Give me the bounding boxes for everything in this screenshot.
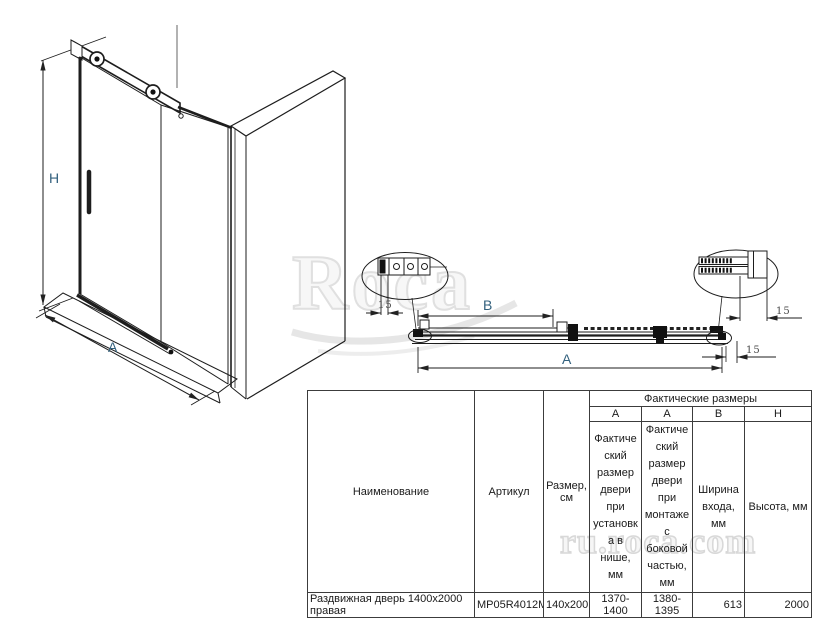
desc-h: Высота, мм [745,422,812,593]
left-offset-label: 15 [378,300,393,311]
right-bottom-offset-label: 15 [746,345,761,356]
iso-width-label: A [108,339,118,355]
spec-table: Наименование Артикул Размер, см Фактичес… [307,390,812,618]
cell-a1: 1370-1400 [590,593,642,618]
header-actual-dimensions: Фактические размеры [590,391,812,407]
subheader-b: B [693,407,745,422]
header-size: Размер, см [544,391,590,593]
table-row: Раздвижная дверь 1400х2000 правая MP05R4… [308,593,812,618]
wall-profile-callout [362,253,448,330]
spec-table-container: Наименование Артикул Размер, см Фактичес… [307,390,812,618]
fixed-glass-panel [161,105,232,384]
plan-b-label: B [483,297,492,313]
cell-a2: 1380-1395 [642,593,693,618]
desc-b: Ширина входа, мм [693,422,745,593]
header-name: Наименование [308,391,475,593]
right-top-offset-label: 15 [776,306,791,317]
subheader-h: H [745,407,812,422]
cell-b: 613 [693,593,745,618]
cell-h: 2000 [745,593,812,618]
cell-article: MP05R4012M [475,593,544,618]
spec-sheet-page: { "watermark": { "brand": "Roca", "site"… [0,0,814,606]
header-article: Артикул [475,391,544,593]
glass-profile-callout [694,250,802,333]
side-wall [231,71,345,399]
iso-view: H [36,25,345,405]
subheader-a2: A [642,407,693,422]
iso-height-label: H [49,170,59,186]
cell-size: 140x200 [544,593,590,618]
plan-a-label: A [562,351,572,367]
desc-a1: Фактический размер двери при установка в… [590,422,642,593]
desc-a2: Фактический размер двери при монтаже с б… [642,422,693,593]
subheader-a1: A [590,407,642,422]
plan-view: 15 15 [362,250,802,373]
shower-tray [44,293,237,403]
cell-product-name: Раздвижная дверь 1400х2000 правая [308,593,475,618]
